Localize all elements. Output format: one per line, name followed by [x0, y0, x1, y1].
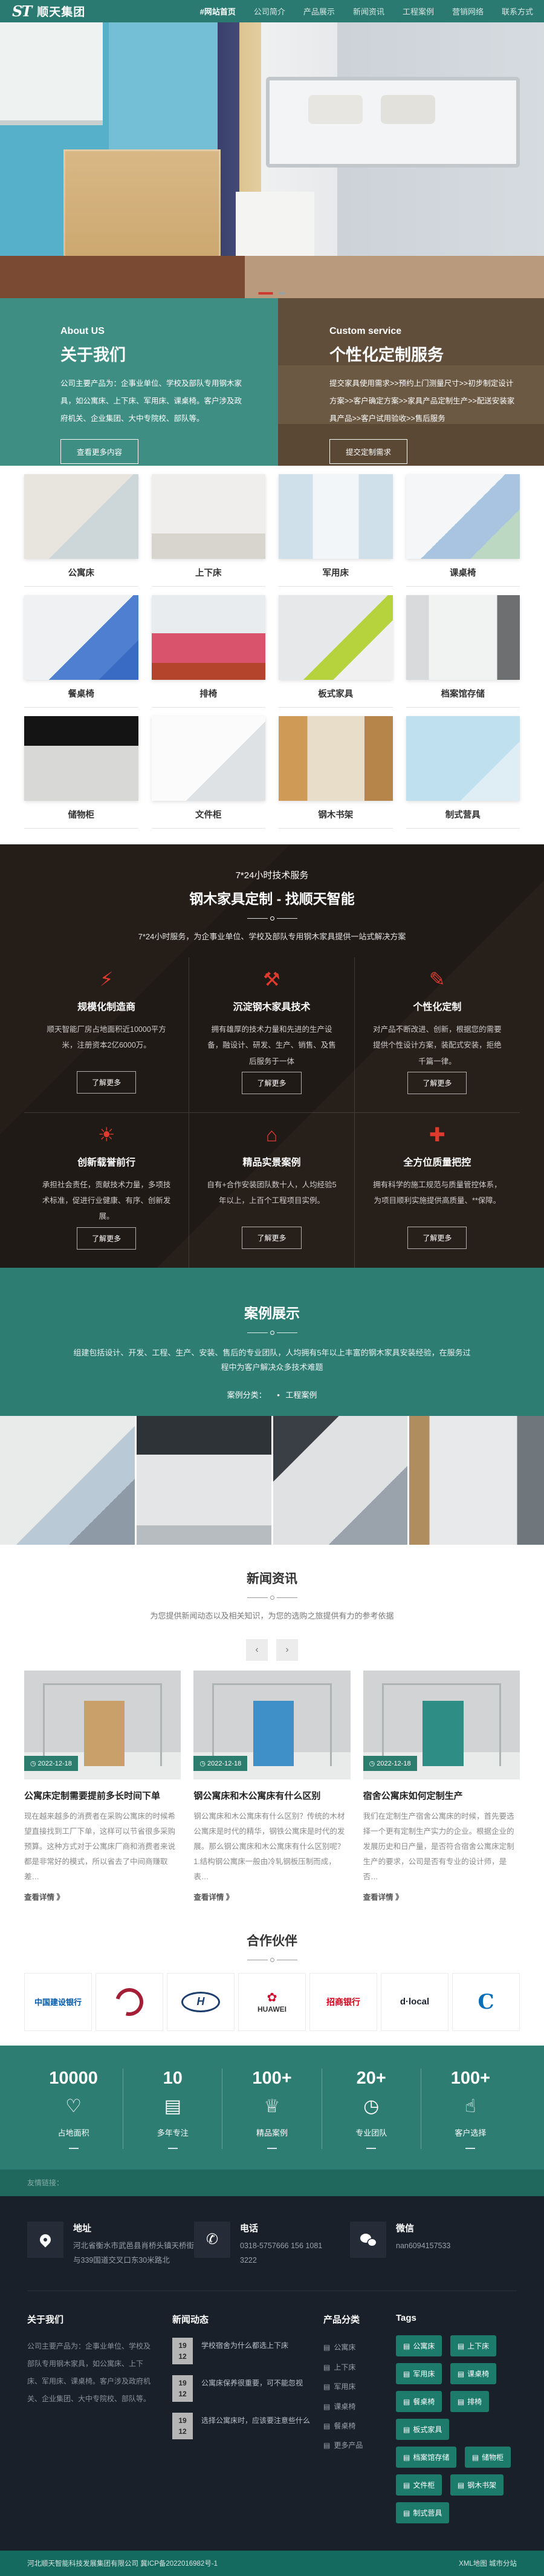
tag-button[interactable]: ▤板式家具	[396, 2419, 449, 2440]
news-date-badge: ◷ 2022-12-18	[193, 1756, 247, 1771]
logo-mark: ST	[12, 2, 31, 20]
case-image[interactable]	[273, 1416, 408, 1545]
product-image	[279, 474, 393, 559]
about-title: 关于我们	[60, 342, 245, 365]
logo-text: 顺天集团	[37, 3, 85, 19]
service-more-button[interactable]: 了解更多	[77, 1071, 136, 1094]
product-card-locker[interactable]: 储物柜	[24, 716, 138, 829]
contact-address: 地址 河北省衡水市武邑县肖桥头镇天桥街与339国道交叉口东30米路北	[27, 2222, 194, 2268]
case-gallery	[0, 1416, 544, 1545]
product-image	[279, 716, 393, 801]
service-more-button[interactable]: 了解更多	[407, 1227, 467, 1249]
carousel-dot[interactable]	[279, 292, 286, 295]
file-icon: ▤	[472, 2453, 479, 2462]
news-image: ◷ 2022-12-18	[193, 1671, 350, 1779]
news-title: 新闻资讯	[0, 1569, 544, 1587]
product-label: 钢木书架	[279, 801, 393, 827]
location-pin-icon	[27, 2222, 63, 2258]
service-card-text: 自有+合作安装团队数十人，人均经验5年以上，上百个工程项目实例。	[206, 1177, 337, 1224]
service-card-innovation: ☀ 创新载誉前行 承担社会责任，贡献技术力量，多项技术标准，促进行业健康、有序、…	[24, 1113, 189, 1268]
tag-button[interactable]: ▤公寓床	[396, 2335, 442, 2356]
service-card-text: 顺天智能厂房占地面积近10000平方米，注册资本2亿6000万。	[41, 1022, 172, 1069]
product-label: 文件柜	[152, 801, 266, 827]
cases-section: 案例展示 组建包括设计、开发、工程、生产、安装、售后的专业团队，人均拥有5年以上…	[0, 1268, 544, 1416]
product-image	[24, 474, 138, 559]
file-icon: ▤	[403, 2370, 410, 2378]
footer-news-title: 选择公寓床时，应该要注意些什么	[201, 2415, 310, 2425]
stat-cases: 100+ ♕ 精品案例	[222, 2069, 322, 2149]
stat-floor-area: 10000 ♡ 占地面积	[24, 2069, 123, 2149]
footer-news-column: 新闻动态 1912 学校宿舍为什么都选上下床 1912 公寓床保养很重要，可不能…	[172, 2313, 323, 2530]
footer-news-item[interactable]: 1912 选择公寓床时，应该要注意些什么	[172, 2413, 323, 2439]
footer-about-column: 关于我们 公司主要产品为：企事业单位、学校及部队专用钢木家具，如公寓床、上下床、…	[27, 2313, 172, 2530]
tag-button[interactable]: ▤上下床	[450, 2335, 496, 2356]
service-card-technology: ⚒ 沉淀钢木家具技术 拥有雄厚的技术力量和先进的生产设备，融设计、研发、生产、销…	[189, 957, 354, 1113]
file-icon: ▤	[323, 2343, 330, 2352]
product-card-military-bed[interactable]: 军用床	[279, 474, 393, 587]
stopwatch-icon: ◷	[322, 2096, 421, 2117]
services-small-title: 7*24小时技术服务	[0, 869, 544, 881]
product-card-panel-furniture[interactable]: 板式家具	[279, 595, 393, 708]
carousel-dot-active[interactable]	[259, 292, 273, 295]
case-image[interactable]	[137, 1416, 271, 1545]
product-image	[406, 474, 520, 559]
partner-logo-china-merchants-bank[interactable]: 招商银行	[309, 1973, 377, 2031]
nav-item-about[interactable]: 公司简介	[254, 5, 285, 17]
friend-links-label: 友情链接：	[27, 2177, 63, 2188]
service-card-cases: ⌂ 精品实景案例 自有+合作安装团队数十人，人均经验5年以上，上百个工程项目实例…	[189, 1113, 354, 1268]
footer-contacts: 地址 河北省衡水市武邑县肖桥头镇天桥街与339国道交叉口东30米路北 ✆ 电话 …	[27, 2222, 517, 2268]
service-card-text: 拥有雄厚的技术力量和先进的生产设备，融设计、研发、生产、销售、及售后服务于一体	[206, 1022, 337, 1069]
date-badge: 1912	[172, 2338, 193, 2364]
copyright-text: 河北顺天智能科技发展集团有限公司 冀ICP备2022016982号-1	[27, 2558, 218, 2568]
category-link[interactable]: ▤军用床	[323, 2377, 396, 2396]
category-link[interactable]: ▤上下床	[323, 2358, 396, 2377]
fire-extinguisher-icon: ✚	[372, 1125, 503, 1144]
contact-wechat: 微信 nan6094157533	[350, 2222, 517, 2268]
divider	[0, 1596, 544, 1600]
footer-news-title: 学校宿舍为什么都选上下床	[201, 2340, 288, 2350]
footer-about-text: 公司主要产品为：企事业单位、学校及部队专用钢木家具，如公寓床、上下床、军用床、课…	[27, 2338, 154, 2407]
news-more-link[interactable]: 查看详情 》	[193, 1891, 350, 1902]
product-label: 制式营具	[406, 801, 520, 827]
category-link[interactable]: ▤公寓床	[323, 2338, 396, 2357]
partner-logo-red-emblem[interactable]	[96, 1973, 163, 2031]
about-more-button[interactable]: 查看更多内容	[60, 439, 138, 464]
bullet-icon: •	[277, 1391, 280, 1400]
news-card-text: 钢公寓床和木公寓床有什么区别？传统的木材公寓床是时代的精华，钢铁公寓床是时代的发…	[193, 1809, 350, 1885]
footer-categories-column: 产品分类 ▤公寓床 ▤上下床 ▤军用床 ▤课桌椅 ▤餐桌椅 ▤更多产品	[323, 2313, 396, 2530]
tag-button[interactable]: ▤课桌椅	[450, 2363, 496, 2384]
heart-icon: ♡	[24, 2096, 123, 2117]
next-arrow-button[interactable]: ›	[276, 1639, 298, 1661]
prev-arrow-button[interactable]: ‹	[246, 1639, 268, 1661]
file-icon: ▤	[403, 2398, 410, 2406]
services-subtitle: 7*24小时服务，为企事业单位、学校及部队专用钢木家具提供一站式解决方案	[0, 930, 544, 942]
custom-text: 提交家具使用需求>>预约上门测量尺寸>>初步制定设计方案>>客户确定方案>>家具…	[329, 375, 520, 427]
footer-column-title: 产品分类	[323, 2313, 396, 2326]
contact-title: 微信	[396, 2222, 517, 2234]
house-icon: ⌂	[206, 1125, 337, 1144]
contact-phone: ✆ 电话 0318-5757666 156 1081 3222	[194, 2222, 350, 2268]
clipboard-icon: ▤	[123, 2096, 222, 2117]
phone-icon: ✆	[194, 2222, 230, 2258]
thumb-up-icon: ☝	[421, 2096, 520, 2117]
cases-subtitle: 组建包括设计、开发、工程、生产、安装、售后的专业团队，人均拥有5年以上丰富的钢木…	[73, 1346, 471, 1375]
stat-clients: 100+ ☝ 客户选择	[421, 2069, 520, 2149]
product-image	[406, 716, 520, 801]
product-card-standard-equipment[interactable]: 制式营具	[406, 716, 520, 829]
partner-logo-hyundai[interactable]: H	[167, 1973, 235, 2031]
products-section: 公寓床 上下床 军用床 课桌椅 餐桌椅 排椅 板式家具 档案馆存储 储物柜 文件…	[0, 466, 544, 844]
footer-divider	[27, 2291, 517, 2291]
custom-submit-button[interactable]: 提交定制需求	[329, 439, 407, 464]
service-card-text: 拥有科学的施工规范与质量管控体系，为项目顺利实施提供高质量、**保障。	[372, 1177, 503, 1224]
stat-value: 10	[123, 2069, 222, 2089]
custom-en-title: Custom service	[329, 326, 520, 337]
footer-column-title: 新闻动态	[172, 2313, 323, 2326]
product-card-row-chairs[interactable]: 排椅	[152, 595, 266, 708]
service-card-quality: ✚ 全方位质量把控 拥有科学的施工规范与质量管控体系，为项目顺利实施提供高质量、…	[355, 1113, 520, 1268]
nav-item-network[interactable]: 营销网络	[452, 5, 484, 17]
product-label: 排椅	[152, 680, 266, 706]
service-more-button[interactable]: 了解更多	[242, 1072, 301, 1094]
product-label: 上下床	[152, 559, 266, 585]
file-icon: ▤	[323, 2402, 330, 2411]
wechat-icon	[350, 2222, 386, 2258]
partner-logo-huawei[interactable]: ✿HUAWEI	[238, 1973, 306, 2031]
contact-text: nan6094157533	[396, 2239, 517, 2254]
stat-value: 100+	[222, 2069, 321, 2089]
tag-button[interactable]: ▤档案馆存储	[396, 2447, 456, 2468]
divider	[0, 1331, 544, 1335]
product-card-apartment-bed[interactable]: 公寓床	[24, 474, 138, 587]
service-card-title: 规模化制造商	[41, 999, 172, 1013]
tag-button[interactable]: ▤餐桌椅	[396, 2391, 442, 2412]
contact-text: 河北省衡水市武邑县肖桥头镇天桥街与339国道交叉口东30米路北	[73, 2239, 194, 2268]
product-label: 餐桌椅	[24, 680, 138, 706]
friend-links-strip: 友情链接：	[0, 2170, 544, 2196]
news-section: 新闻资讯 为您提供新闻动态以及相关知识，为您的选购之旅提供有力的参考依据 ‹ ›…	[0, 1545, 544, 1928]
case-image[interactable]	[409, 1416, 544, 1545]
news-more-link[interactable]: 查看详情 》	[363, 1891, 520, 1902]
product-label: 公寓床	[24, 559, 138, 585]
news-subtitle: 为您提供新闻动态以及相关知识，为您的选购之旅提供有力的参考依据	[0, 1609, 544, 1621]
footer-news-title: 公寓床保养很重要，可不能忽视	[201, 2378, 303, 2388]
product-image	[279, 595, 393, 680]
product-card-school-desk[interactable]: 课桌椅	[406, 474, 520, 587]
footer-tags-column: Tags ▤公寓床 ▤上下床 ▤军用床 ▤课桌椅 ▤餐桌椅 ▤排椅 ▤板式家具 …	[396, 2313, 517, 2530]
case-filter-engineering[interactable]: 工程案例	[285, 1391, 317, 1400]
sun-icon: ☀	[41, 1125, 172, 1144]
tag-button[interactable]: ▤制式营具	[396, 2502, 449, 2523]
stat-label: 占地面积	[24, 2127, 123, 2138]
nav-item-products[interactable]: 产品展示	[303, 5, 335, 17]
service-more-button[interactable]: 了解更多	[242, 1227, 301, 1249]
footer-news-item[interactable]: 1912 学校宿舍为什么都选上下床	[172, 2338, 323, 2364]
nav-item-news[interactable]: 新闻资讯	[353, 5, 384, 17]
stats-band: 10000 ♡ 占地面积 10 ▤ 多年专注 100+ ♕ 精品案例 20+ ◷…	[0, 2046, 544, 2170]
product-card-archive-storage[interactable]: 档案馆存储	[406, 595, 520, 708]
news-card-title: 宿舍公寓床如何定制生产	[363, 1789, 520, 1802]
logo[interactable]: ST 顺天集团	[12, 2, 85, 20]
contact-text: 0318-5757666 156 1081 3222	[240, 2239, 325, 2268]
service-more-button[interactable]: 了解更多	[407, 1072, 467, 1094]
partner-logo-dlocal[interactable]: d·local	[381, 1973, 448, 2031]
plug-icon: ⚡	[41, 970, 172, 989]
product-label: 档案馆存储	[406, 680, 520, 706]
partners-section: 合作伙伴 中国建设银行 H ✿HUAWEI 招商银行 d·local C	[0, 1928, 544, 2046]
footer: 地址 河北省衡水市武邑县肖桥头镇天桥街与339国道交叉口东30米路北 ✆ 电话 …	[0, 2196, 544, 2576]
about-text: 公司主要产品为：企事业单位、学校及部队专用钢木家具，如公寓床、上下床、军用床、课…	[60, 375, 245, 427]
carousel-dots	[259, 292, 286, 295]
news-card[interactable]: ◷ 2022-12-18 公寓床定制需要提前多长时间下单 现在越来越多的消费者在…	[24, 1671, 181, 1902]
stat-team: 20+ ◷ 专业团队	[322, 2069, 421, 2149]
service-card-text: 承担社会责任，贡献技术力量，多项技术标准，促进行业健康、有序、创新发展。	[41, 1177, 172, 1225]
date-badge: 1912	[172, 2375, 193, 2402]
footer-column-title: Tags	[396, 2313, 517, 2323]
tag-button[interactable]: ▤排椅	[450, 2391, 489, 2412]
file-icon: ▤	[458, 2481, 464, 2490]
product-label: 课桌椅	[406, 559, 520, 585]
news-card-title: 公寓床定制需要提前多长时间下单	[24, 1789, 181, 1802]
news-image: ◷ 2022-12-18	[363, 1671, 520, 1779]
contact-title: 电话	[240, 2222, 325, 2234]
product-image	[24, 595, 138, 680]
service-card-title: 个性化定制	[372, 999, 503, 1013]
stat-value: 100+	[421, 2069, 520, 2089]
service-card-title: 沉淀钢木家具技术	[206, 999, 337, 1013]
stat-label: 多年专注	[123, 2127, 222, 2138]
file-icon: ▤	[403, 2425, 410, 2434]
file-icon: ▤	[403, 2453, 410, 2462]
stat-label: 客户选择	[421, 2127, 520, 2138]
services-section: 7*24小时技术服务 钢木家具定制 - 找顺天智能 7*24小时服务，为企事业单…	[0, 844, 544, 1268]
cases-title: 案例展示	[0, 1302, 544, 1322]
product-image	[406, 595, 520, 680]
stat-value: 20+	[322, 2069, 421, 2089]
news-more-link[interactable]: 查看详情 》	[24, 1891, 181, 1902]
file-icon: ▤	[403, 2481, 410, 2490]
contact-title: 地址	[73, 2222, 194, 2234]
stat-value: 10000	[24, 2069, 123, 2089]
tag-button[interactable]: ▤军用床	[396, 2363, 442, 2384]
huawei-flower-icon: ✿	[257, 1990, 287, 2005]
news-carousel-controls: ‹ ›	[0, 1639, 544, 1661]
footer-news-item[interactable]: 1912 公寓床保养很重要，可不能忽视	[172, 2375, 323, 2402]
nav-item-home[interactable]: #网站首页	[200, 5, 236, 17]
nav-item-contact[interactable]: 联系方式	[502, 5, 533, 17]
about-panel: About US 关于我们 公司主要产品为：企事业单位、学校及部队专用钢木家具，…	[0, 298, 278, 466]
custom-service-panel: Custom service 个性化定制服务 提交家具使用需求>>预约上门测量尺…	[278, 298, 544, 466]
file-icon: ▤	[458, 2342, 464, 2350]
product-card-bookshelf[interactable]: 钢木书架	[279, 716, 393, 829]
file-icon: ▤	[403, 2509, 410, 2517]
case-filter-label: 案例分类：	[227, 1391, 267, 1400]
service-card-title: 创新载誉前行	[41, 1154, 172, 1169]
file-icon: ▤	[323, 2382, 330, 2391]
file-icon: ▤	[458, 2370, 464, 2378]
about-en-title: About US	[60, 326, 245, 337]
tag-button[interactable]: ▤文件柜	[396, 2474, 442, 2496]
services-title: 钢木家具定制 - 找顺天智能	[0, 887, 544, 908]
service-card-manufacturer: ⚡ 规模化制造商 顺天智能厂房占地面积近10000平方米，注册资本2亿6000万…	[24, 957, 189, 1113]
custom-title: 个性化定制服务	[329, 342, 520, 365]
divider	[0, 1958, 544, 1962]
service-card-title: 全方位质量把控	[372, 1154, 503, 1169]
product-label: 军用床	[279, 559, 393, 585]
news-card-title: 钢公寓床和木公寓床有什么区别	[193, 1789, 350, 1802]
product-image	[152, 474, 266, 559]
news-card[interactable]: ◷ 2022-12-18 钢公寓床和木公寓床有什么区别 钢公寓床和木公寓床有什么…	[193, 1671, 350, 1902]
file-icon: ▤	[323, 2441, 330, 2450]
news-grid: ◷ 2022-12-18 公寓床定制需要提前多长时间下单 现在越来越多的消费者在…	[24, 1671, 520, 1902]
product-image	[152, 716, 266, 801]
service-card-customization: ✎ 个性化定制 对产品不断改进、创新，根据您的需要提供个性设计方案，装配式安装，…	[355, 957, 520, 1113]
hero-image-detail	[308, 95, 363, 124]
file-icon: ▤	[323, 2422, 330, 2430]
category-link[interactable]: ▤更多产品	[323, 2436, 396, 2455]
product-label: 储物柜	[24, 801, 138, 827]
hammer-icon: ⚒	[206, 970, 337, 989]
stat-label: 精品案例	[222, 2127, 321, 2138]
news-card-text: 我们在定制生产宿舍公寓床的时候，首先要选择一个更有定制生产实力的企业。根据企业的…	[363, 1809, 520, 1885]
news-image: ◷ 2022-12-18	[24, 1671, 181, 1779]
hero-image-detail	[266, 77, 520, 168]
file-icon: ▤	[403, 2342, 410, 2350]
stat-years: 10 ▤ 多年专注	[123, 2069, 222, 2149]
service-more-button[interactable]: 了解更多	[77, 1227, 136, 1250]
date-badge: 1912	[172, 2413, 193, 2439]
service-card-title: 精品实景案例	[206, 1154, 337, 1169]
tag-button[interactable]: ▤储物柜	[465, 2447, 511, 2468]
file-icon: ▤	[458, 2398, 464, 2406]
hero-carousel	[0, 22, 544, 298]
category-link[interactable]: ▤餐桌椅	[323, 2416, 396, 2436]
category-link[interactable]: ▤课桌椅	[323, 2397, 396, 2416]
hero-image-detail	[0, 22, 103, 125]
partner-logo-china-construction-bank[interactable]: 中国建设银行	[24, 1973, 92, 2031]
product-card-file-cabinet[interactable]: 文件柜	[152, 716, 266, 829]
paint-roller-icon: ✎	[372, 970, 503, 989]
news-card[interactable]: ◷ 2022-12-18 宿舍公寓床如何定制生产 我们在定制生产宿舍公寓床的时候…	[363, 1671, 520, 1902]
tag-button[interactable]: ▤钢木书架	[450, 2474, 504, 2496]
product-card-dining-set[interactable]: 餐桌椅	[24, 595, 138, 708]
footer-column-title: 关于我们	[27, 2313, 154, 2326]
news-card-text: 现在越来越多的消费者在采购公寓床的时候希望直接找到工厂下单，这样可以节省很多采购…	[24, 1809, 181, 1885]
partners-title: 合作伙伴	[0, 1931, 544, 1949]
case-filter: 案例分类： • 工程案例	[0, 1389, 544, 1400]
services-grid: ⚡ 规模化制造商 顺天智能厂房占地面积近10000平方米，注册资本2亿6000万…	[24, 957, 520, 1268]
footer-columns: 关于我们 公司主要产品为：企事业单位、学校及部队专用钢木家具，如公寓床、上下床、…	[27, 2313, 517, 2551]
partner-logo-c[interactable]: C	[452, 1973, 520, 2031]
case-image[interactable]	[0, 1416, 135, 1545]
nav-item-cases[interactable]: 工程案例	[403, 5, 434, 17]
sitemap-links[interactable]: XML地图 城市分站	[459, 2558, 517, 2568]
product-image	[24, 716, 138, 801]
products-grid: 公寓床 上下床 军用床 课桌椅 餐桌椅 排椅 板式家具 档案馆存储 储物柜 文件…	[24, 474, 520, 829]
product-label: 板式家具	[279, 680, 393, 706]
news-date-badge: ◷ 2022-12-18	[363, 1756, 417, 1771]
stat-label: 专业团队	[322, 2127, 421, 2138]
partner-logos: 中国建设银行 H ✿HUAWEI 招商银行 d·local C	[24, 1973, 520, 2031]
service-card-text: 对产品不断改进、创新，根据您的需要提供个性设计方案，装配式安装，拒绝千篇一律。	[372, 1022, 503, 1069]
file-icon: ▤	[323, 2363, 330, 2372]
about-section: About US 关于我们 公司主要产品为：企事业单位、学校及部队专用钢木家具，…	[0, 298, 544, 466]
news-date-badge: ◷ 2022-12-18	[24, 1756, 78, 1771]
navbar: ST 顺天集团 #网站首页 公司简介 产品展示 新闻资讯 工程案例 营销网络 联…	[0, 0, 544, 22]
crown-icon: ♕	[222, 2096, 321, 2117]
divider	[0, 916, 544, 921]
product-image	[152, 595, 266, 680]
footer-bottom-bar: 河北顺天智能科技发展集团有限公司 冀ICP备2022016982号-1 XML地…	[0, 2551, 544, 2576]
product-card-bunk-bed[interactable]: 上下床	[152, 474, 266, 587]
nav-menu: #网站首页 公司简介 产品展示 新闻资讯 工程案例 营销网络 联系方式	[200, 5, 533, 17]
